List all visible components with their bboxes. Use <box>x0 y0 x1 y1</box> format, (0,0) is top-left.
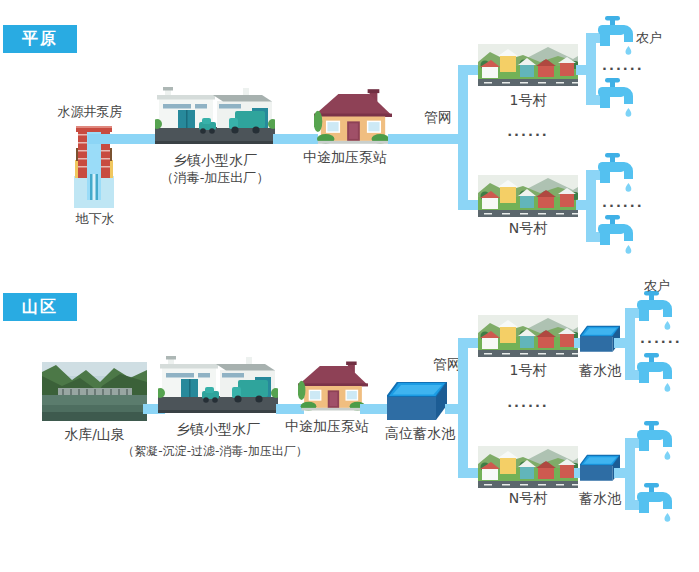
villageN-icon <box>478 175 578 217</box>
ellipsis-between-villages: ...... <box>502 125 554 138</box>
plant-process-label: （絮凝-沉淀-过滤-消毒-加压出厂） <box>105 444 325 459</box>
booster-station-label: 中途加压泵站 <box>277 418 377 436</box>
faucet-icon <box>598 153 634 193</box>
water-supply-diagram: 平原 水源井泵房 地下水 乡镇小型水厂 （消毒-加压出厂） 中途加压泵站 管网 … <box>0 0 699 572</box>
pipe-plain-plant-to-booster <box>273 134 318 144</box>
high-level-tank-icon <box>387 382 447 420</box>
village1-label: 1号村 <box>478 362 578 380</box>
pipe-plain-trunk <box>458 65 468 210</box>
well-pump-house-label: 水源井泵房 <box>35 104 145 120</box>
plant-label: 乡镇小型水厂 <box>155 152 275 170</box>
village-tank-label: 蓄水池 <box>568 490 632 508</box>
household-label: 农户 <box>644 278 670 294</box>
faucet-icon <box>637 483 673 523</box>
water-plant-icon <box>155 87 275 145</box>
ellipsis-between-faucets: ...... <box>640 332 682 345</box>
reservoir-label: 水库/山泉 <box>37 426 152 444</box>
faucet-icon <box>637 353 673 393</box>
pipe-plain-well-to-plant <box>88 134 162 144</box>
pipe-plain-booster-to-trunk <box>388 134 468 144</box>
pipe-mtn-trunk <box>458 338 468 478</box>
ellipsis-between-villages: ...... <box>502 396 554 409</box>
ellipsis-between-faucets: ...... <box>602 59 644 72</box>
booster-station-icon <box>314 89 392 144</box>
mountain-section-badge: 山区 <box>3 293 77 321</box>
faucet-icon <box>637 291 673 331</box>
high-level-tank-label: 高位蓄水池 <box>377 425 463 443</box>
faucet-icon <box>598 215 634 255</box>
booster-station-icon <box>298 360 368 412</box>
villageN-icon <box>478 446 578 488</box>
ellipsis-between-faucets: ...... <box>602 196 644 209</box>
booster-station-label: 中途加压泵站 <box>295 149 395 167</box>
village1-icon <box>478 315 578 357</box>
reservoir-photo <box>42 362 147 421</box>
plant-label: 乡镇小型水厂 <box>158 421 278 439</box>
faucet-icon <box>637 421 673 461</box>
faucet-icon <box>598 16 634 56</box>
pipe-network-label: 管网 <box>415 109 461 127</box>
village1-label: 1号村 <box>478 92 578 110</box>
village1-icon <box>478 44 578 86</box>
villageN-label: N号村 <box>478 220 578 238</box>
household-label: 农户 <box>636 30 662 46</box>
plant-process-label: （消毒-加压出厂） <box>135 170 295 186</box>
faucet-icon <box>598 78 634 118</box>
groundwater-label: 地下水 <box>50 211 140 227</box>
water-plant-icon <box>158 356 278 414</box>
villageN-label: N号村 <box>478 490 578 508</box>
plain-section-badge: 平原 <box>3 25 77 53</box>
village-tank-label: 蓄水池 <box>568 362 632 380</box>
